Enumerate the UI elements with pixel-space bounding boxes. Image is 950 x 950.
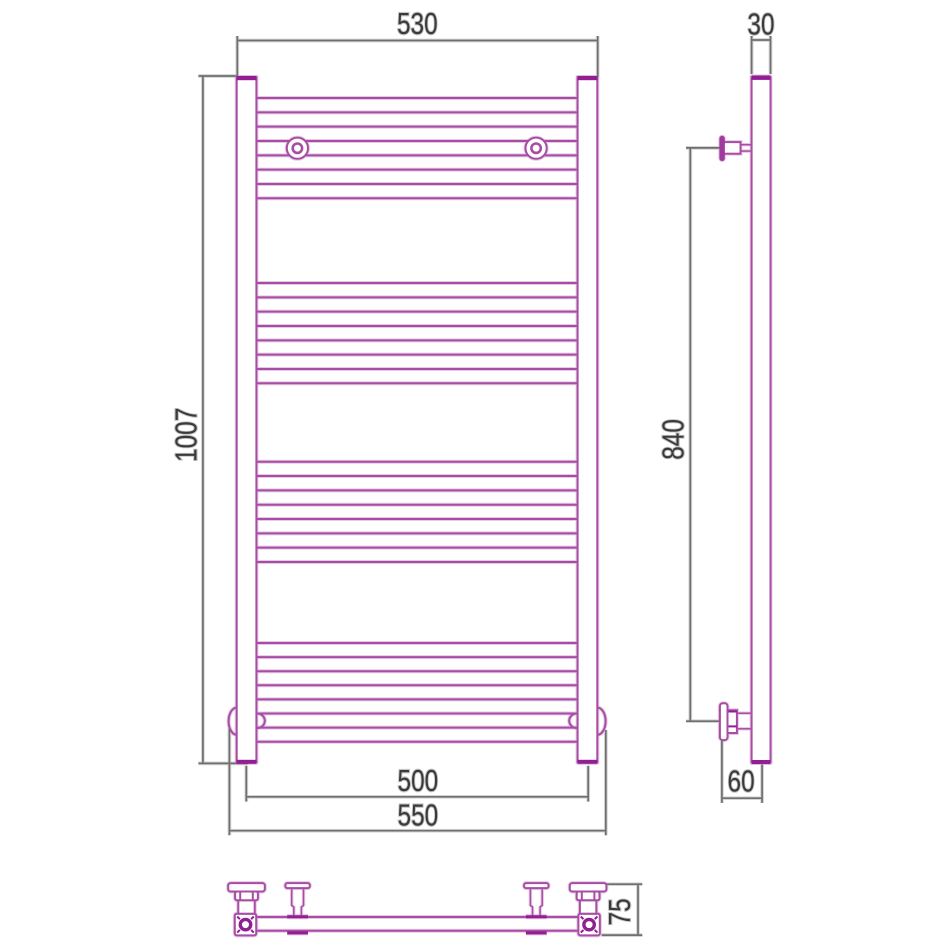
svg-text:500: 500 [398, 763, 439, 797]
svg-text:550: 550 [398, 798, 439, 832]
svg-text:840: 840 [656, 419, 690, 460]
svg-text:530: 530 [397, 7, 438, 41]
svg-text:75: 75 [603, 898, 637, 925]
svg-text:30: 30 [747, 7, 774, 41]
svg-text:60: 60 [728, 764, 755, 798]
svg-text:1007: 1007 [169, 408, 203, 462]
